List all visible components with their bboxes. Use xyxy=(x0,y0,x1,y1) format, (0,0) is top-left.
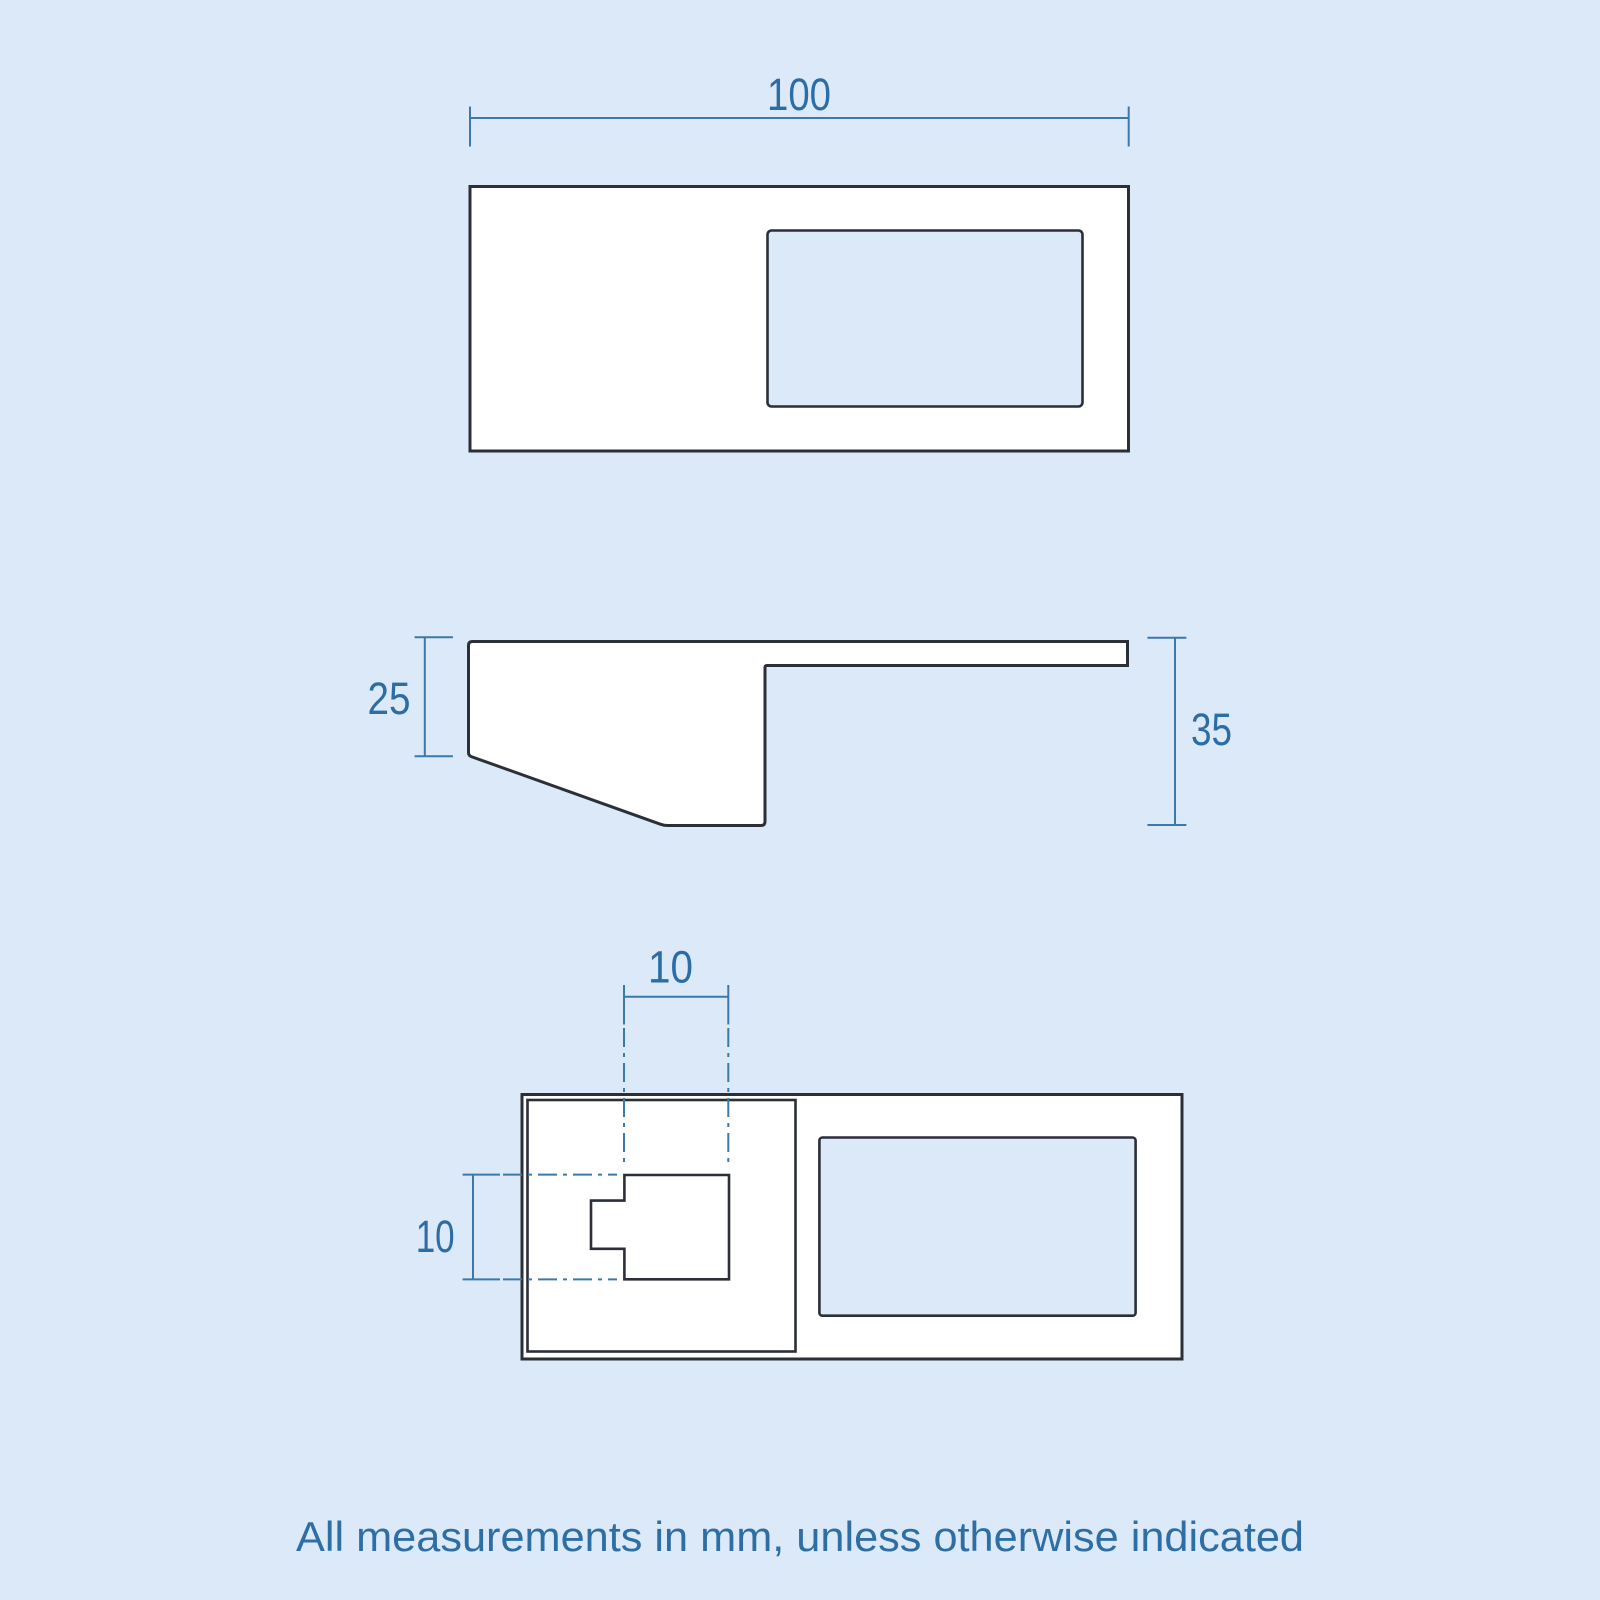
svg-text:10: 10 xyxy=(648,942,693,993)
svg-text:35: 35 xyxy=(1191,704,1232,755)
svg-text:10: 10 xyxy=(416,1211,455,1262)
svg-text:25: 25 xyxy=(368,673,411,724)
svg-text:All measurements in mm, unless: All measurements in mm, unless otherwise… xyxy=(296,1513,1304,1560)
svg-text:100: 100 xyxy=(767,69,831,120)
